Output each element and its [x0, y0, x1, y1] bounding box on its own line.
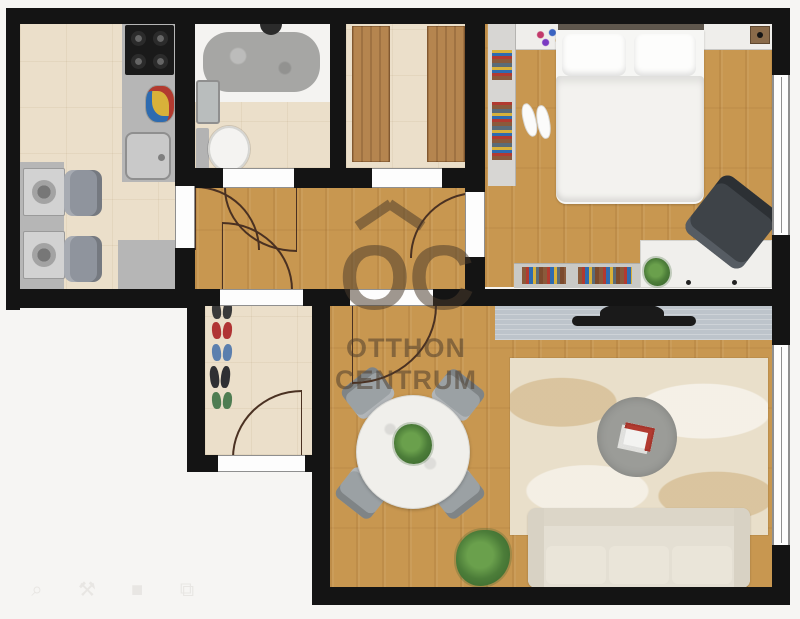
bathroom-door — [223, 168, 294, 188]
washing-machine — [23, 231, 65, 279]
kitchen-door — [175, 186, 195, 248]
sofa — [528, 508, 750, 588]
wardrobe-room-door — [372, 168, 442, 188]
table-plant — [394, 424, 432, 464]
kitchen-sink — [125, 132, 171, 180]
desk-knob — [732, 280, 737, 285]
kitchen-armchair — [64, 236, 102, 282]
shoes — [210, 344, 236, 362]
wardrobe — [427, 26, 465, 162]
wall — [330, 8, 346, 188]
desk-knob — [686, 280, 691, 285]
wall — [433, 289, 772, 306]
wall — [175, 248, 195, 292]
wall — [187, 289, 220, 306]
duvet — [556, 76, 704, 202]
tv-back — [600, 303, 664, 323]
pillow — [634, 34, 696, 76]
zoom-icon[interactable]: ⌕ — [26, 578, 48, 602]
wall — [175, 168, 223, 188]
magazines — [621, 422, 655, 452]
wall — [294, 168, 372, 188]
wall — [187, 289, 205, 472]
pillow — [562, 34, 626, 76]
kitchen-counter-corner — [118, 240, 175, 289]
double-bed — [556, 30, 704, 204]
washing-machine — [23, 168, 65, 216]
bedroom-window — [772, 75, 790, 235]
wall — [465, 8, 485, 192]
shoes — [210, 392, 236, 410]
layers-icon[interactable]: ⧉ — [176, 578, 198, 602]
speaker-box — [750, 26, 770, 44]
viewer-toolbar: ⌕ ⚒ ■ ⧉ — [26, 578, 198, 602]
entrance-door — [218, 455, 305, 472]
wardrobe — [352, 26, 390, 162]
living-room-door — [350, 289, 433, 306]
desk-plant — [644, 258, 670, 286]
wall — [442, 168, 485, 188]
living-room-window — [772, 345, 790, 545]
kitchen-armchair — [64, 170, 102, 216]
wall — [175, 8, 195, 188]
wall — [312, 289, 330, 605]
floorplan-canvas[interactable]: OC OTTHON CENTRUM — [0, 0, 800, 619]
toilet — [196, 126, 250, 172]
tools-icon[interactable]: ⚒ — [76, 578, 98, 602]
wall — [187, 455, 218, 472]
wall — [312, 587, 790, 605]
low-bookshelf — [514, 263, 640, 288]
gas-hob — [125, 25, 174, 75]
washbasin — [196, 80, 220, 124]
wall — [6, 8, 20, 310]
shoes — [210, 322, 236, 340]
entry-passage — [220, 289, 303, 306]
stop-square-icon[interactable]: ■ — [126, 578, 148, 602]
shoes — [208, 366, 234, 384]
slippers — [524, 104, 550, 138]
coffee-table — [597, 397, 677, 477]
wall — [303, 289, 350, 306]
bedroom-side-shelf — [488, 24, 516, 186]
wall — [6, 8, 790, 24]
fruit-bowl — [146, 86, 174, 122]
bedroom-door — [465, 192, 485, 257]
